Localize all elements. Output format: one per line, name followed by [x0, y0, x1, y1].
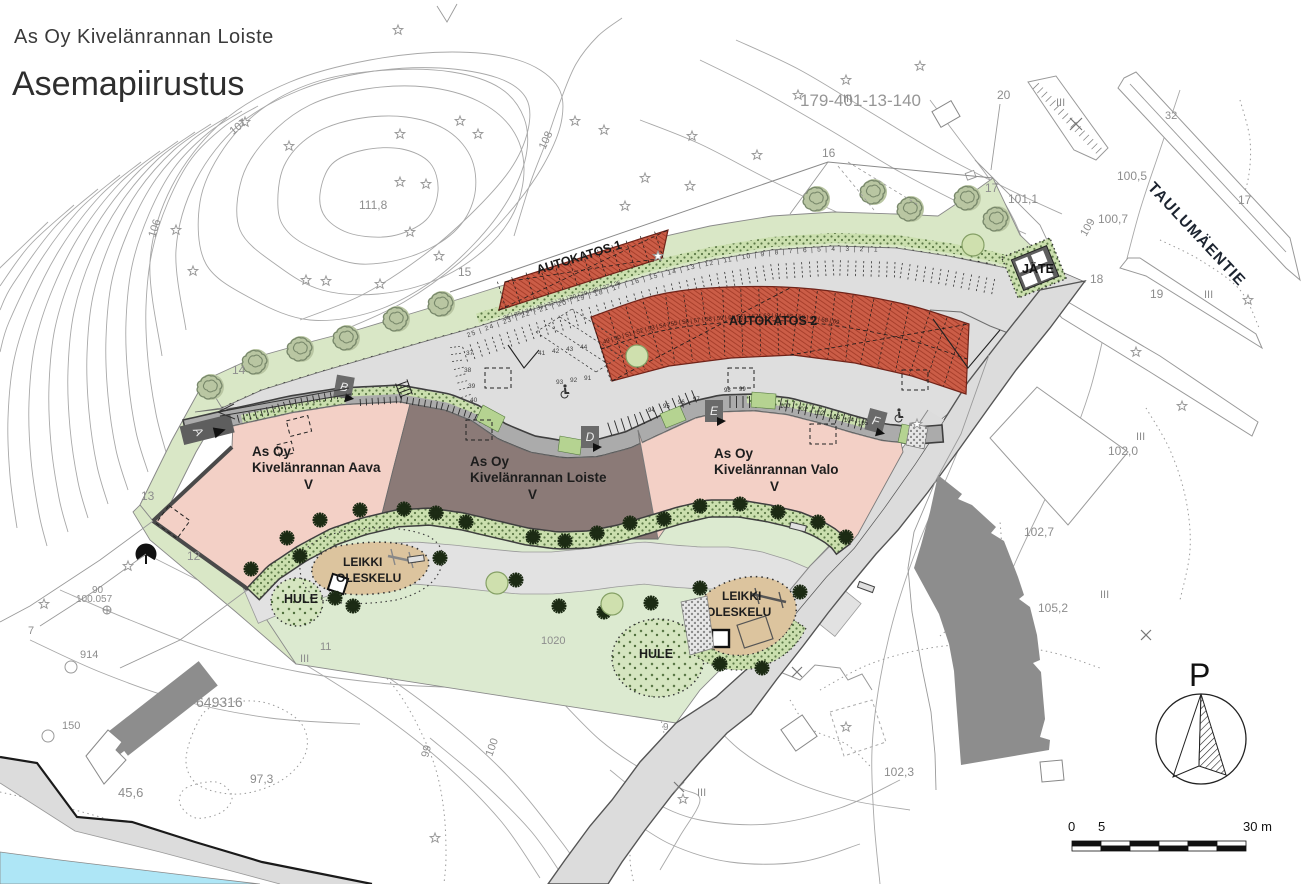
svg-text:9: 9: [663, 722, 669, 733]
svg-text:102: 102: [814, 411, 825, 417]
svg-text:HULE: HULE: [639, 647, 673, 661]
svg-text:0: 0: [1068, 819, 1075, 834]
svg-text:100.057: 100.057: [76, 594, 113, 605]
svg-text:91: 91: [584, 375, 592, 382]
svg-text:13: 13: [141, 489, 155, 503]
svg-text:17: 17: [985, 181, 999, 195]
svg-text:As Oy: As Oy: [714, 446, 754, 461]
svg-text:41: 41: [538, 350, 546, 357]
svg-text:101: 101: [797, 407, 808, 413]
svg-text:Kivelänrannan Aava: Kivelänrannan Aava: [252, 460, 381, 475]
svg-text:III: III: [843, 93, 852, 105]
svg-text:III: III: [300, 653, 309, 665]
svg-text:150: 150: [62, 720, 80, 732]
svg-text:39: 39: [468, 383, 476, 390]
svg-text:AUTOKATOS 2: AUTOKATOS 2: [729, 314, 817, 328]
svg-text:As Oy: As Oy: [252, 444, 292, 459]
svg-text:19: 19: [1150, 287, 1164, 301]
svg-text:18: 18: [1090, 272, 1104, 286]
svg-text:16: 16: [822, 146, 836, 160]
svg-text:D: D: [586, 430, 595, 444]
svg-text:98: 98: [724, 388, 731, 394]
svg-text:11: 11: [320, 641, 331, 653]
svg-text:OLESKELU: OLESKELU: [706, 605, 771, 619]
svg-text:104: 104: [844, 418, 855, 424]
svg-text:96: 96: [678, 400, 685, 406]
svg-text:101,1: 101,1: [1008, 192, 1038, 206]
svg-text:OLESKELU: OLESKELU: [336, 571, 401, 585]
svg-text:P: P: [1189, 657, 1210, 693]
svg-text:HULE: HULE: [284, 592, 318, 606]
svg-text:III: III: [1136, 431, 1145, 443]
svg-text:95: 95: [663, 404, 670, 410]
svg-text:E: E: [710, 404, 719, 418]
svg-text:45,6: 45,6: [118, 785, 143, 800]
svg-text:30 m: 30 m: [1243, 819, 1272, 834]
svg-text:97,3: 97,3: [250, 772, 274, 786]
svg-text:32: 32: [1165, 110, 1177, 122]
svg-text:14: 14: [232, 363, 246, 377]
svg-text:103: 103: [830, 415, 841, 421]
svg-text:100,5: 100,5: [1117, 169, 1147, 183]
svg-text:42: 42: [552, 348, 560, 355]
svg-text:649316: 649316: [196, 694, 243, 710]
svg-text:III: III: [1100, 589, 1109, 601]
svg-text:105,2: 105,2: [1038, 601, 1068, 615]
svg-text:V: V: [528, 487, 537, 502]
svg-text:LEIKKI: LEIKKI: [343, 555, 382, 569]
svg-text:102,7: 102,7: [1024, 525, 1054, 539]
svg-text:1020: 1020: [541, 635, 565, 647]
svg-text:105: 105: [858, 421, 869, 427]
svg-text:5: 5: [1098, 819, 1105, 834]
svg-text:17: 17: [1238, 193, 1252, 207]
svg-text:914: 914: [80, 649, 98, 661]
svg-text:Kivelänrannan Valo: Kivelänrannan Valo: [714, 462, 839, 477]
svg-text:III: III: [1204, 289, 1213, 301]
svg-text:V: V: [304, 477, 313, 492]
svg-text:As Oy: As Oy: [470, 454, 510, 469]
svg-text:Asemapiirustus: Asemapiirustus: [12, 65, 244, 103]
svg-text:179-401-13-140: 179-401-13-140: [800, 91, 921, 110]
svg-text:93: 93: [556, 379, 564, 386]
svg-text:III: III: [1056, 97, 1065, 109]
svg-text:37: 37: [466, 350, 474, 357]
svg-text:III: III: [697, 787, 706, 799]
svg-text:92: 92: [570, 377, 578, 384]
svg-text:12: 12: [187, 549, 201, 563]
svg-text:As Oy Kivelänrannan Loiste: As Oy Kivelänrannan Loiste: [14, 26, 274, 48]
svg-text:7: 7: [28, 625, 34, 637]
svg-text:102,0: 102,0: [1108, 444, 1138, 458]
svg-text:V: V: [770, 479, 779, 494]
svg-text:102,3: 102,3: [884, 765, 914, 779]
svg-text:38: 38: [464, 367, 472, 374]
svg-text:111,8: 111,8: [359, 198, 388, 212]
svg-text:43: 43: [566, 346, 574, 353]
svg-text:JÄTE: JÄTE: [1022, 261, 1054, 276]
svg-text:97: 97: [693, 397, 700, 403]
svg-text:100,7: 100,7: [1098, 212, 1128, 226]
svg-text:LEIKKI: LEIKKI: [722, 589, 761, 603]
svg-text:100: 100: [780, 404, 791, 410]
svg-text:20: 20: [997, 88, 1011, 102]
svg-text:94: 94: [648, 408, 655, 414]
svg-text:15: 15: [458, 265, 472, 279]
svg-text:Kivelänrannan Loiste: Kivelänrannan Loiste: [470, 470, 607, 485]
